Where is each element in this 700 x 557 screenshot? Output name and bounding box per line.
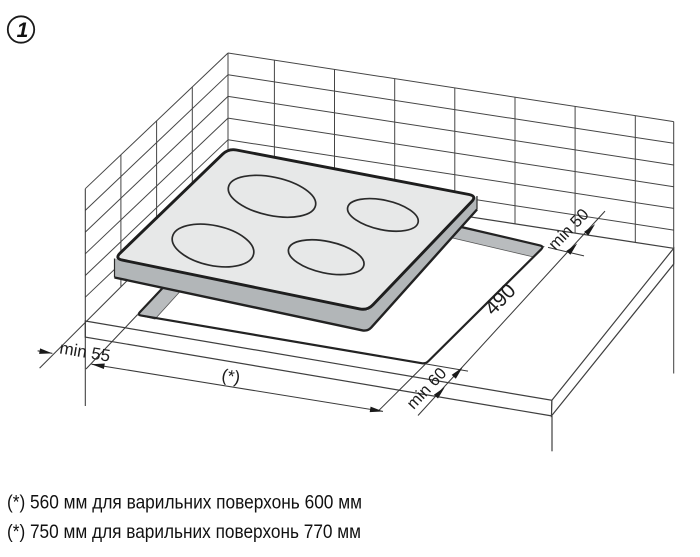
svg-text:(*): (*) — [220, 365, 242, 388]
svg-text:(*) 750 мм для варильних повер: (*) 750 мм для варильних поверхонь 770 м… — [7, 521, 361, 543]
svg-text:1: 1 — [17, 19, 29, 42]
svg-text:(*) 560 мм для варильних повер: (*) 560 мм для варильних поверхонь 600 м… — [7, 492, 362, 514]
